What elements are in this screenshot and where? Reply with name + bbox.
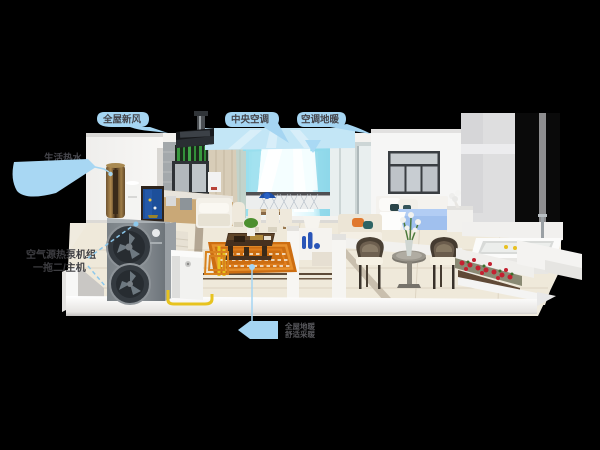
svg-text:舒适采暖: 舒适采暖 bbox=[285, 329, 315, 339]
svg-text:中央空调: 中央空调 bbox=[231, 114, 269, 126]
svg-text:空调地暖: 空调地暖 bbox=[301, 114, 340, 126]
svg-text:一拖二/主机: 一拖二/主机 bbox=[33, 261, 86, 274]
svg-text:空气源热泵机组: 空气源热泵机组 bbox=[26, 248, 96, 261]
svg-text:全屋新风: 全屋新风 bbox=[102, 114, 142, 126]
